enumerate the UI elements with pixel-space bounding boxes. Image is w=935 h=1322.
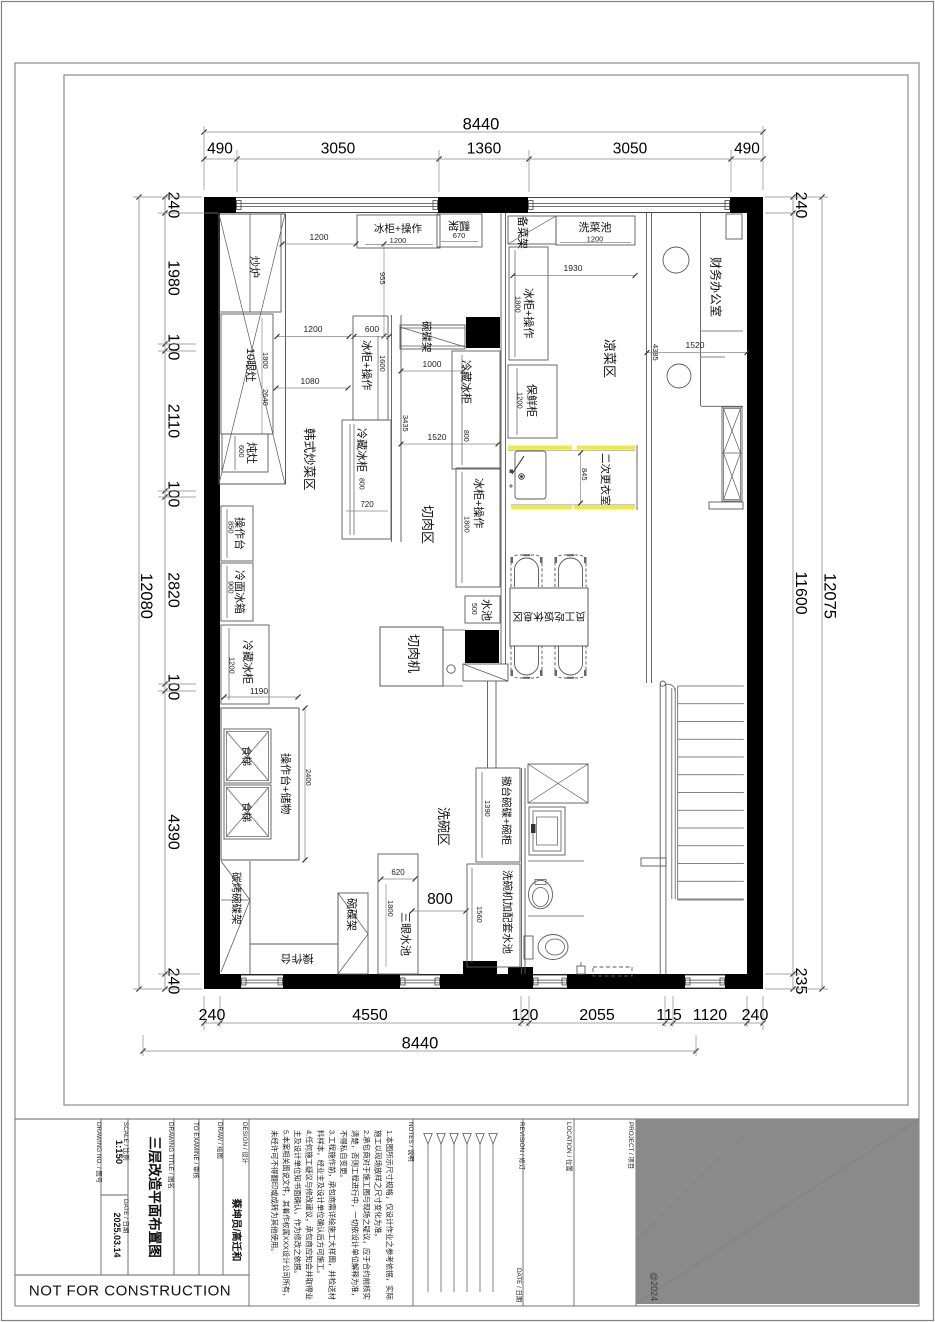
svg-text:2640: 2640 — [261, 389, 270, 406]
svg-text:1980: 1980 — [165, 260, 182, 296]
svg-text:12075: 12075 — [821, 573, 839, 619]
svg-text:100: 100 — [165, 334, 182, 361]
svg-text:600: 600 — [237, 445, 246, 458]
svg-text:3.工程施作前，承包商需详绘施工大样图，并检送材: 3.工程施作前，承包商需详绘施工大样图，并检送材 — [328, 1130, 337, 1301]
svg-text:5.本案相关图说文件，其着作权属XXX设计公司所有，: 5.本案相关图说文件，其着作权属XXX设计公司所有， — [282, 1130, 291, 1300]
svg-text:DRAWING TITLE / 图名: DRAWING TITLE / 图名 — [167, 1122, 176, 1189]
svg-text:切肉区: 切肉区 — [420, 505, 435, 544]
svg-text:LOCATION / 位置: LOCATION / 位置 — [565, 1122, 574, 1172]
svg-text:DRAWING NO. / 图号: DRAWING NO. / 图号 — [95, 1122, 103, 1183]
svg-text:720: 720 — [360, 500, 374, 509]
svg-text:碳烤碗碟架: 碳烤碗碟架 — [230, 872, 243, 925]
svg-text:未经许可不得翻印或成转为其他使用。: 未经许可不得翻印或成转为其他使用。 — [270, 1130, 279, 1256]
svg-text:3435: 3435 — [401, 415, 410, 432]
svg-text:蔡坤员/高迁和: 蔡坤员/高迁和 — [230, 1198, 243, 1262]
svg-text:8440: 8440 — [463, 116, 500, 134]
svg-text:2110: 2110 — [165, 404, 182, 439]
svg-text:500: 500 — [470, 603, 477, 615]
svg-text:1080: 1080 — [301, 376, 320, 386]
svg-text:DRAW / 绘图: DRAW / 绘图 — [216, 1122, 225, 1159]
svg-text:1520: 1520 — [686, 340, 705, 350]
svg-text:REVISION / 修订: REVISION / 修订 — [518, 1122, 527, 1171]
svg-text:NOT FOR CONSTRUCTION: NOT FOR CONSTRUCTION — [29, 1283, 231, 1300]
svg-text:1200: 1200 — [228, 657, 237, 674]
svg-text:845: 845 — [580, 468, 589, 481]
svg-text:240: 240 — [792, 192, 809, 219]
svg-text:490: 490 — [734, 141, 760, 158]
svg-text:操作台+储物: 操作台+储物 — [279, 753, 293, 814]
svg-text:1800: 1800 — [514, 296, 523, 313]
svg-text:韩式炒菜区: 韩式炒菜区 — [302, 428, 317, 491]
svg-text:切肉机: 切肉机 — [406, 634, 421, 673]
svg-text:食梯: 食梯 — [240, 802, 253, 822]
svg-text:1200: 1200 — [516, 392, 525, 409]
svg-text:洗菜池: 洗菜池 — [579, 221, 612, 234]
svg-text:2400: 2400 — [304, 769, 313, 786]
svg-text:11600: 11600 — [792, 571, 809, 614]
svg-text:1930: 1930 — [564, 263, 583, 273]
svg-text:2055: 2055 — [579, 1007, 615, 1024]
svg-text:TO EXAMINE / 审核: TO EXAMINE / 审核 — [192, 1122, 201, 1179]
svg-text:600: 600 — [365, 324, 379, 334]
svg-text:1200: 1200 — [304, 324, 323, 334]
svg-text:冷藏冰柜: 冷藏冰柜 — [241, 640, 254, 684]
svg-text:2025.03.14: 2025.03.14 — [112, 1212, 122, 1257]
svg-text:115: 115 — [656, 1007, 682, 1024]
svg-text:1800: 1800 — [463, 516, 472, 533]
svg-text:水池: 水池 — [480, 599, 493, 621]
svg-text:1390: 1390 — [483, 800, 492, 817]
svg-text:撤台碗碟+碗柜: 撤台碗碟+碗柜 — [500, 776, 513, 845]
svg-text:冷藏冰柜: 冷藏冰柜 — [460, 360, 473, 404]
svg-text:620: 620 — [391, 868, 405, 877]
svg-text:料样本，经业主及设计单位确认后方可施工。: 料样本，经业主及设计单位确认后方可施工。 — [316, 1130, 325, 1278]
svg-text:@2024: @2024 — [649, 1272, 659, 1301]
svg-text:1120: 1120 — [693, 1007, 728, 1024]
svg-text:800: 800 — [358, 478, 365, 490]
svg-text:670: 670 — [453, 231, 466, 240]
svg-text:955: 955 — [378, 272, 387, 285]
svg-text:洗碗机加配套水池: 洗碗机加配套水池 — [501, 870, 514, 954]
svg-text:1:150: 1:150 — [113, 1140, 124, 1164]
svg-text:主及设计单位知书面确认，作为修改之依据。: 主及设计单位知书面确认，作为修改之依据。 — [293, 1130, 302, 1278]
svg-text:10眼灶: 10眼灶 — [244, 348, 257, 382]
svg-text:100: 100 — [165, 481, 182, 508]
svg-text:1200: 1200 — [390, 236, 407, 245]
svg-text:1520: 1520 — [428, 432, 447, 442]
svg-text:二次更衣室: 二次更衣室 — [599, 453, 612, 506]
svg-text:冰柜+操作: 冰柜+操作 — [522, 288, 536, 338]
svg-text:1360: 1360 — [467, 141, 502, 158]
svg-text:1.本图所示尺寸规格，仅设计作业之参考依据，实际: 1.本图所示尺寸规格，仅设计作业之参考依据，实际 — [385, 1130, 394, 1301]
svg-text:三层改造平面布置图: 三层改造平面布置图 — [147, 1136, 163, 1258]
svg-text:冰柜+操作: 冰柜+操作 — [374, 222, 423, 235]
svg-text:三眼水池: 三眼水池 — [399, 912, 412, 956]
svg-text:1800: 1800 — [386, 900, 395, 917]
svg-text:NOTES / 说明: NOTES / 说明 — [407, 1122, 416, 1162]
svg-text:800: 800 — [427, 891, 453, 908]
svg-text:财务办公室: 财务办公室 — [709, 257, 724, 317]
svg-text:240: 240 — [165, 968, 182, 995]
svg-text:冰柜+操作: 冰柜+操作 — [472, 478, 486, 528]
svg-text:操作台: 操作台 — [281, 952, 314, 966]
svg-text:DATE / 日期: DATE / 日期 — [122, 1199, 130, 1233]
svg-text:DATE / 日期: DATE / 日期 — [515, 1268, 523, 1302]
svg-text:240: 240 — [742, 1007, 769, 1024]
svg-text:12080: 12080 — [137, 573, 155, 619]
svg-text:2820: 2820 — [165, 572, 182, 608]
svg-text:清楚，否则工程进行中，一切依设计单位解释为准，: 清楚，否则工程进行中，一切依设计单位解释为准， — [351, 1130, 360, 1300]
svg-text:8440: 8440 — [402, 1035, 439, 1053]
svg-text:240: 240 — [165, 192, 182, 219]
svg-text:冰柜+操作: 冰柜+操作 — [360, 340, 374, 390]
svg-text:碗碟架: 碗碟架 — [420, 321, 433, 353]
svg-text:235: 235 — [792, 968, 809, 995]
svg-text:1190: 1190 — [250, 686, 269, 696]
svg-text:800: 800 — [462, 430, 469, 442]
svg-text:不得私自变更。: 不得私自变更。 — [339, 1130, 348, 1182]
svg-text:洗碗区: 洗碗区 — [436, 807, 451, 846]
svg-text:炒炉: 炒炉 — [248, 256, 261, 278]
svg-text:4.任何施工疑议与修改建议，承包商应知会并取得业: 4.任何施工疑议与修改建议，承包商应知会并取得业 — [305, 1130, 314, 1300]
svg-text:1800: 1800 — [261, 352, 270, 369]
svg-text:冷藏冰柜: 冷藏冰柜 — [355, 428, 368, 472]
svg-text:施工以现场放样之尺寸变化为准。: 施工以现场放样之尺寸变化为准。 — [374, 1130, 383, 1241]
svg-text:850: 850 — [227, 521, 236, 534]
svg-text:3050: 3050 — [321, 141, 356, 158]
svg-text:3050: 3050 — [613, 141, 648, 158]
svg-text:1560: 1560 — [475, 906, 484, 923]
svg-text:PROJECT / 项目: PROJECT / 项目 — [627, 1122, 635, 1169]
svg-text:DESIGN / 设计: DESIGN / 设计 — [241, 1122, 250, 1165]
svg-text:100: 100 — [165, 674, 182, 701]
svg-text:4550: 4550 — [352, 1007, 388, 1024]
svg-text:保鲜柜: 保鲜柜 — [525, 384, 539, 417]
svg-text:240: 240 — [199, 1007, 226, 1024]
svg-text:1600: 1600 — [378, 355, 387, 372]
svg-text:120: 120 — [512, 1007, 539, 1024]
svg-text:碗碟架: 碗碟架 — [345, 898, 359, 931]
svg-text:490: 490 — [207, 141, 233, 158]
svg-text:1000: 1000 — [423, 359, 442, 369]
svg-text:员工吃饭休息区: 员工吃饭休息区 — [512, 610, 586, 623]
svg-text:备菜架: 备菜架 — [516, 216, 530, 249]
svg-text:食梯: 食梯 — [240, 746, 253, 766]
svg-text:1200: 1200 — [310, 232, 329, 242]
svg-text:2.承包商对于施工图与现场之疑议，应于合约前核实: 2.承包商对于施工图与现场之疑议，应于合约前核实 — [362, 1130, 371, 1300]
svg-text:900: 900 — [227, 581, 236, 594]
svg-text:凉菜区: 凉菜区 — [602, 339, 617, 378]
svg-text:4390: 4390 — [165, 814, 182, 850]
